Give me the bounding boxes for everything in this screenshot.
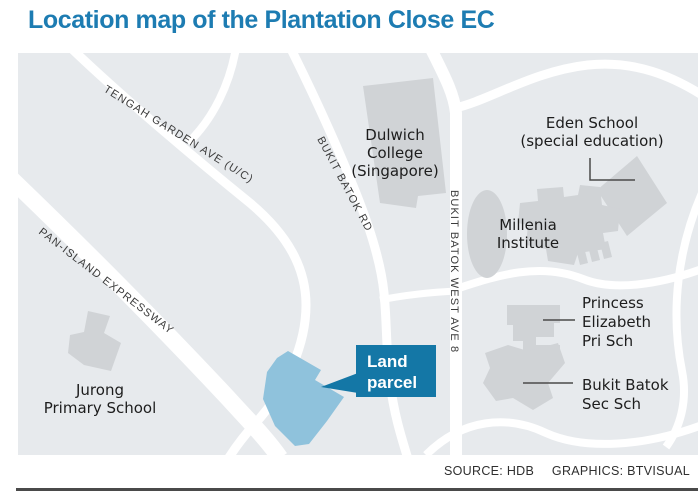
credits: SOURCE: HDB GRAPHICS: BTVISUAL bbox=[430, 464, 690, 478]
building-millenia-strip-3 bbox=[600, 241, 612, 259]
callout-label-line2: parcel bbox=[367, 373, 417, 392]
page-title: Location map of the Plantation Close EC bbox=[28, 6, 494, 35]
label-millenia-line2: Institute bbox=[497, 234, 559, 252]
label-bukit-batok-sec-line2: Sec Sch bbox=[582, 395, 641, 413]
label-dulwich-line1: Dulwich bbox=[365, 126, 424, 144]
label-jurong-line2: Primary School bbox=[44, 399, 157, 417]
callout-label-line1: Land bbox=[367, 352, 408, 371]
label-princess-line1: Princess bbox=[582, 294, 644, 312]
map-area: TENGAH GARDEN AVE (U/C) PAN-ISLAND EXPRE… bbox=[18, 53, 698, 455]
road-label-tengah-garden-ave: TENGAH GARDEN AVE (U/C) bbox=[101, 83, 255, 186]
label-jurong-line1: Jurong bbox=[75, 381, 124, 399]
label-millenia-line1: Millenia bbox=[499, 216, 557, 234]
building-jurong-primary bbox=[68, 311, 121, 371]
road-right-edge bbox=[666, 193, 698, 447]
road-branch-top-left bbox=[188, 53, 236, 143]
land-parcel-callout: Land parcel bbox=[321, 345, 436, 397]
road-label-bukit-batok-west-ave-8: BUKIT BATOK WEST AVE 8 bbox=[448, 190, 460, 353]
label-dulwich-line3: (Singapore) bbox=[351, 162, 438, 180]
map-svg: TENGAH GARDEN AVE (U/C) PAN-ISLAND EXPRE… bbox=[18, 53, 698, 455]
label-princess-line3: Pri Sch bbox=[582, 332, 633, 350]
label-princess-line2: Elizabeth bbox=[582, 313, 651, 331]
building-bukit-batok-sec bbox=[483, 343, 565, 410]
road-connector-mid bbox=[380, 291, 456, 300]
source-credit: SOURCE: HDB bbox=[444, 464, 534, 478]
road-top-right bbox=[455, 64, 698, 108]
bottom-rule bbox=[16, 488, 698, 491]
label-bukit-batok-sec-line1: Bukit Batok bbox=[582, 376, 669, 394]
graphics-credit: GRAPHICS: BTVISUAL bbox=[552, 464, 690, 478]
land-parcel-shape bbox=[263, 351, 344, 446]
label-eden-line2: (special education) bbox=[520, 132, 663, 150]
infographic: Location map of the Plantation Close EC bbox=[0, 0, 698, 498]
road-label-bukit-batok-rd: BUKIT BATOK RD bbox=[314, 135, 374, 234]
label-dulwich-line2: College bbox=[367, 144, 423, 162]
road-bottom-right bbox=[426, 422, 698, 455]
label-eden-line1: Eden School bbox=[546, 114, 638, 132]
